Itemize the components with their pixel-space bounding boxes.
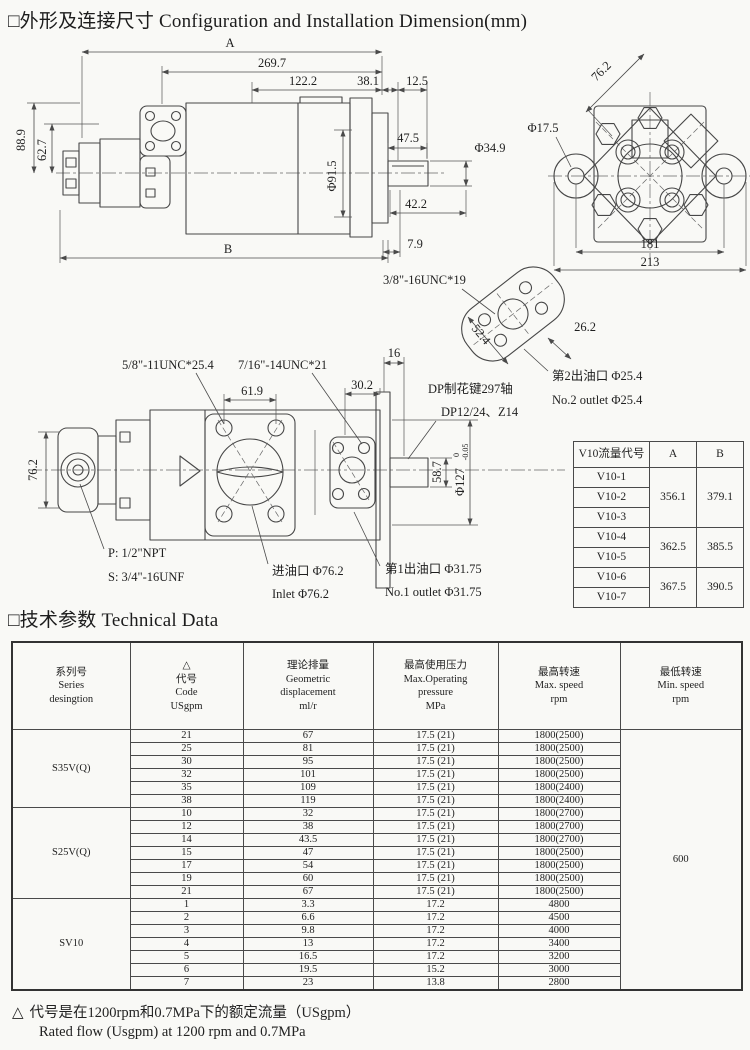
figure-side-view: A 269.7 122.2 38.1 12.5 88.9 62.7 xyxy=(14,36,506,263)
dim-213: 213 xyxy=(641,255,660,269)
dim-127: Φ127 xyxy=(453,468,467,496)
flow-code-cell: V10-6 xyxy=(574,568,650,588)
tech-table-row: S35V(Q)216717.5 (21)1800(2500)600 xyxy=(12,730,742,743)
flow-code-cell: V10-5 xyxy=(574,548,650,568)
flow-b-cell: 385.5 xyxy=(697,528,744,568)
flow-b-cell: 379.1 xyxy=(697,468,744,528)
tech-value-cell: 1800(2500) xyxy=(498,886,620,899)
flow-code-cell: V10-2 xyxy=(574,488,650,508)
tech-value-cell: 15.2 xyxy=(373,964,498,977)
tech-value-cell: 109 xyxy=(243,782,373,795)
outlet2-label-en: No.2 outlet Φ25.4 xyxy=(552,393,643,407)
flow-table-row: V10-4362.5385.5 xyxy=(574,528,744,548)
footnote-en-text: Rated flow (Usgpm) at 1200 rpm and 0.7MP… xyxy=(39,1024,306,1040)
side-view-body xyxy=(63,97,428,237)
tech-value-cell: 17.2 xyxy=(373,938,498,951)
tech-value-cell: 32 xyxy=(243,808,373,821)
dim-127-tol-hi: 0 xyxy=(452,453,461,457)
tech-table-body: S35V(Q)216717.5 (21)1800(2500)600258117.… xyxy=(12,730,742,991)
tech-value-cell: 10 xyxy=(130,808,243,821)
flow-col-a-header: A xyxy=(650,442,697,468)
catalog-page: □外形及连接尺寸 Configuration and Installation … xyxy=(0,0,750,1050)
tech-value-cell: 1800(2500) xyxy=(498,860,620,873)
flow-table-row: V10-6367.5390.5 xyxy=(574,568,744,588)
tech-value-cell: 1800(2500) xyxy=(498,873,620,886)
tech-value-cell: 1 xyxy=(130,899,243,912)
tech-value-cell: 3000 xyxy=(498,964,620,977)
series-cell: S35V(Q) xyxy=(12,730,130,808)
footnote-line-en: Rated flow (Usgpm) at 1200 rpm and 0.7MP… xyxy=(39,1023,360,1042)
tech-value-cell: 1800(2500) xyxy=(498,730,620,743)
series-cell: SV10 xyxy=(12,899,130,991)
thread-label-5-8: 5/8"-11UNC*25.4 xyxy=(122,358,215,372)
dim-34-9: Φ34.9 xyxy=(474,141,505,155)
tech-value-cell: 17.2 xyxy=(373,912,498,925)
inlet-label-cn: 进油口 Φ76.2 xyxy=(272,564,344,578)
tech-value-cell: 38 xyxy=(243,821,373,834)
tech-value-cell: 3400 xyxy=(498,938,620,951)
thread-label-7-16: 7/16"-14UNC*21 xyxy=(238,358,327,372)
tech-value-cell: 14 xyxy=(130,834,243,847)
inlet-label-en: Inlet Φ76.2 xyxy=(272,587,329,601)
dim-52-4: 52.4 xyxy=(469,322,494,348)
tech-value-cell: 17.5 (21) xyxy=(373,834,498,847)
dim-47-5: 47.5 xyxy=(397,131,419,145)
tech-value-cell: 2800 xyxy=(498,977,620,991)
min-speed-cell: 600 xyxy=(620,730,742,991)
flow-a-cell: 362.5 xyxy=(650,528,697,568)
tech-value-cell: 32 xyxy=(130,769,243,782)
dim-76-2-diag: 76.2 xyxy=(588,58,613,83)
tech-value-cell: 17.5 (21) xyxy=(373,769,498,782)
dim-12-5: 12.5 xyxy=(406,74,428,88)
tech-value-cell: 21 xyxy=(130,886,243,899)
tech-header-min-speed: 最低转速 Min. speed rpm xyxy=(620,642,742,730)
dim-17-5: Φ17.5 xyxy=(527,121,558,135)
end-view-dimensions: 76.2 Φ17.5 181 213 xyxy=(527,54,746,270)
footnote-line-cn: △代号是在1200rpm和0.7MPa下的额定流量（USgpm） xyxy=(12,1004,360,1023)
tech-value-cell: 13.8 xyxy=(373,977,498,991)
flow-a-cell: 356.1 xyxy=(650,468,697,528)
dim-62-7: 62.7 xyxy=(35,139,49,161)
tech-value-cell: 15 xyxy=(130,847,243,860)
outlet-flange-body xyxy=(451,256,575,371)
tech-value-cell: 67 xyxy=(243,730,373,743)
tech-value-cell: 35 xyxy=(130,782,243,795)
tech-header-displacement: 理论排量 Geometric displacement ml/r xyxy=(243,642,373,730)
tech-value-cell: 1800(2700) xyxy=(498,834,620,847)
flow-table-row: V10-1356.1379.1 xyxy=(574,468,744,488)
tech-value-cell: 19 xyxy=(130,873,243,886)
dim-7-9: 7.9 xyxy=(407,237,423,251)
tech-value-cell: 9.8 xyxy=(243,925,373,938)
dim-26-2: 26.2 xyxy=(574,320,596,334)
triangle-mark-icon: △ xyxy=(12,1005,30,1021)
mid-view-dimensions: 61.9 30.2 16 76.2 58.7 Φ1 xyxy=(26,346,519,601)
dim-42-2: 42.2 xyxy=(405,197,427,211)
tech-value-cell: 119 xyxy=(243,795,373,808)
tech-value-cell: 47 xyxy=(243,847,373,860)
technical-data-table: 系列号 Series desingtion △ 代号 Code USgpm 理论… xyxy=(11,641,743,991)
tech-value-cell: 4500 xyxy=(498,912,620,925)
tech-header-max-speed: 最高转速 Max. speed rpm xyxy=(498,642,620,730)
thread-label-3-8: 3/8"-16UNC*19 xyxy=(383,273,466,287)
tech-value-cell: 1800(2700) xyxy=(498,821,620,834)
series-cell: S25V(Q) xyxy=(12,808,130,899)
tech-value-cell: 43.5 xyxy=(243,834,373,847)
tech-value-cell: 101 xyxy=(243,769,373,782)
dim-76-2-mid: 76.2 xyxy=(26,459,40,481)
flow-code-table: V10流量代号 A B V10-1356.1379.1V10-2V10-3V10… xyxy=(573,441,744,608)
flow-table-body: V10-1356.1379.1V10-2V10-3V10-4362.5385.5… xyxy=(574,468,744,608)
tech-value-cell: 1800(2500) xyxy=(498,756,620,769)
flow-col-code-header: V10流量代号 xyxy=(574,442,650,468)
tech-value-cell: 30 xyxy=(130,756,243,769)
tech-value-cell: 17.5 (21) xyxy=(373,873,498,886)
port-s-label: S: 3/4"-16UNF xyxy=(108,570,184,584)
tech-value-cell: 17.5 (21) xyxy=(373,847,498,860)
dim-269-7: 269.7 xyxy=(258,56,286,70)
tech-value-cell: 25 xyxy=(130,743,243,756)
dim-58-7: 58.7 xyxy=(430,461,444,483)
dim-122-2: 122.2 xyxy=(289,74,317,88)
flow-code-cell: V10-1 xyxy=(574,468,650,488)
figure-mid-view: 61.9 30.2 16 76.2 58.7 Φ1 xyxy=(26,346,565,601)
tech-value-cell: 21 xyxy=(130,730,243,743)
tech-value-cell: 6 xyxy=(130,964,243,977)
flow-code-cell: V10-7 xyxy=(574,588,650,608)
spline-label-cn: DP制花键297轴 xyxy=(428,381,513,396)
tech-value-cell: 1800(2500) xyxy=(498,847,620,860)
flow-b-cell: 390.5 xyxy=(697,568,744,608)
tech-value-cell: 3200 xyxy=(498,951,620,964)
footnote-cn-text: 代号是在1200rpm和0.7MPa下的额定流量（USgpm） xyxy=(30,1005,361,1021)
tech-section-title: □技术参数 Technical Data xyxy=(8,605,218,632)
tech-value-cell: 17.5 (21) xyxy=(373,782,498,795)
tech-value-cell: 2 xyxy=(130,912,243,925)
tech-header-pressure: 最高使用压力 Max.Operating pressure MPa xyxy=(373,642,498,730)
flow-code-cell: V10-4 xyxy=(574,528,650,548)
tech-value-cell: 95 xyxy=(243,756,373,769)
tech-value-cell: 17 xyxy=(130,860,243,873)
tech-table-header-row: 系列号 Series desingtion △ 代号 Code USgpm 理论… xyxy=(12,642,742,730)
dim-B: B xyxy=(224,242,232,256)
tech-value-cell: 6.6 xyxy=(243,912,373,925)
side-view-dimensions: A 269.7 122.2 38.1 12.5 88.9 62.7 xyxy=(14,36,506,263)
dim-181: 181 xyxy=(641,237,660,251)
spline-label-en: DP12/24、Z14 xyxy=(441,405,519,419)
tech-value-cell: 17.5 (21) xyxy=(373,795,498,808)
dim-88-9: 88.9 xyxy=(14,129,28,151)
tech-value-cell: 3.3 xyxy=(243,899,373,912)
dim-16: 16 xyxy=(388,346,401,360)
flow-col-b-header: B xyxy=(697,442,744,468)
tech-value-cell: 17.5 (21) xyxy=(373,808,498,821)
tech-section-title-en: Technical Data xyxy=(101,610,218,631)
port-p-label: P: 1/2"NPT xyxy=(108,546,167,560)
tech-header-code: △ 代号 Code USgpm xyxy=(130,642,243,730)
outlet1-label-cn: 第1出油口 Φ31.75 xyxy=(385,562,482,576)
tech-value-cell: 54 xyxy=(243,860,373,873)
tech-value-cell: 12 xyxy=(130,821,243,834)
tech-value-cell: 38 xyxy=(130,795,243,808)
tech-value-cell: 1800(2500) xyxy=(498,769,620,782)
tech-value-cell: 17.5 (21) xyxy=(373,756,498,769)
tech-value-cell: 23 xyxy=(243,977,373,991)
tech-value-cell: 5 xyxy=(130,951,243,964)
tech-value-cell: 17.5 (21) xyxy=(373,730,498,743)
tech-value-cell: 19.5 xyxy=(243,964,373,977)
tech-header-series: 系列号 Series desingtion xyxy=(12,642,130,730)
tech-value-cell: 4000 xyxy=(498,925,620,938)
dim-127-tol-lo: -0.05 xyxy=(461,444,470,461)
tech-value-cell: 1800(2500) xyxy=(498,743,620,756)
tech-value-cell: 17.2 xyxy=(373,899,498,912)
tech-value-cell: 1800(2400) xyxy=(498,795,620,808)
flow-table-header-row: V10流量代号 A B xyxy=(574,442,744,468)
dim-A: A xyxy=(225,36,234,50)
tech-value-cell: 1800(2400) xyxy=(498,782,620,795)
flow-a-cell: 367.5 xyxy=(650,568,697,608)
tech-value-cell: 17.2 xyxy=(373,951,498,964)
tech-value-cell: 17.2 xyxy=(373,925,498,938)
tech-value-cell: 1800(2700) xyxy=(498,808,620,821)
dim-30-2: 30.2 xyxy=(351,378,373,392)
footnote: △代号是在1200rpm和0.7MPa下的额定流量（USgpm） Rated f… xyxy=(12,1004,360,1042)
tech-value-cell: 16.5 xyxy=(243,951,373,964)
tech-value-cell: 67 xyxy=(243,886,373,899)
dim-38-1: 38.1 xyxy=(357,74,379,88)
tech-value-cell: 4 xyxy=(130,938,243,951)
outlet2-label-cn: 第2出油口 Φ25.4 xyxy=(552,369,643,383)
tech-value-cell: 17.5 (21) xyxy=(373,886,498,899)
figure-outlet-flange-detail: 52.4 26.2 3/8"-16UNC*19 第2出油口 Φ25.4 No.2… xyxy=(383,256,643,407)
dim-91-5: Φ91.5 xyxy=(325,160,339,191)
tech-value-cell: 7 xyxy=(130,977,243,991)
tech-value-cell: 13 xyxy=(243,938,373,951)
tech-section-title-cn: □技术参数 xyxy=(8,610,96,631)
outlet1-label-en: No.1 outlet Φ31.75 xyxy=(385,585,482,599)
tech-value-cell: 81 xyxy=(243,743,373,756)
tech-value-cell: 17.5 (21) xyxy=(373,743,498,756)
flow-code-cell: V10-3 xyxy=(574,508,650,528)
tech-value-cell: 60 xyxy=(243,873,373,886)
tech-value-cell: 17.5 (21) xyxy=(373,821,498,834)
outlet-flange-dimensions: 52.4 26.2 3/8"-16UNC*19 第2出油口 Φ25.4 No.2… xyxy=(383,273,643,407)
tech-value-cell: 4800 xyxy=(498,899,620,912)
dim-61-9: 61.9 xyxy=(241,384,263,398)
tech-value-cell: 3 xyxy=(130,925,243,938)
figure-end-view: 76.2 Φ17.5 181 213 xyxy=(527,54,750,270)
tech-value-cell: 17.5 (21) xyxy=(373,860,498,873)
